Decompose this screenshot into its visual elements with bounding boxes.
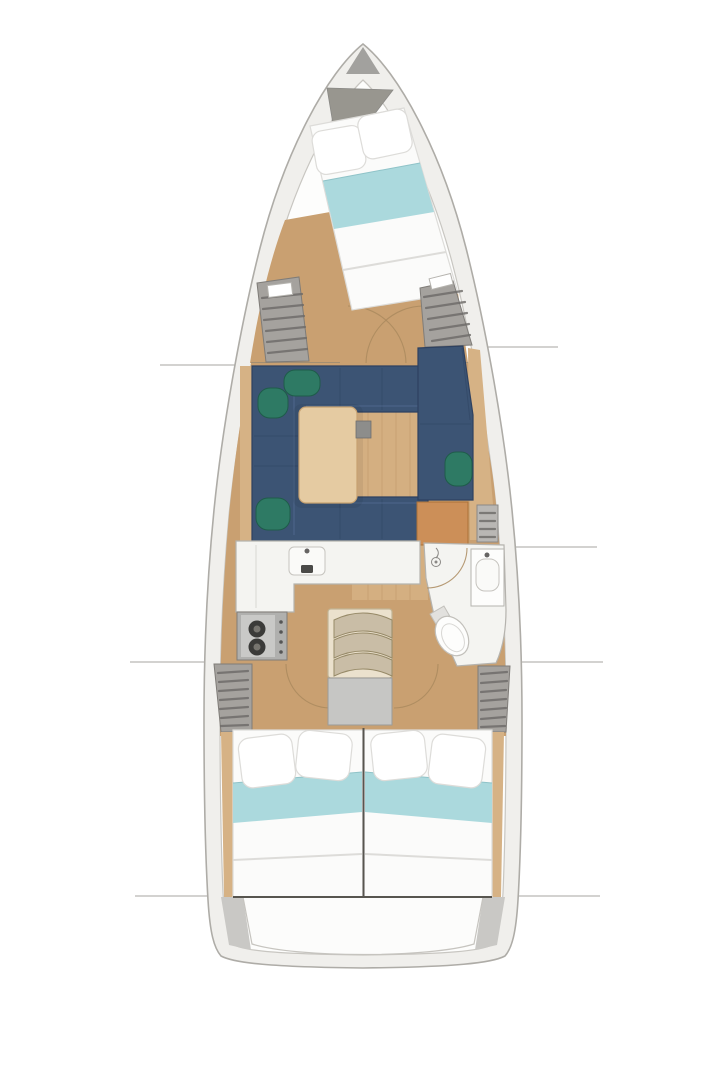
sink-drain: [301, 565, 313, 573]
engine-box: [328, 678, 392, 725]
yacht-floor-plan: [0, 0, 721, 1080]
pillow: [356, 107, 414, 160]
aft-cabin-starboard-bed: [364, 729, 492, 897]
burner-center: [254, 626, 261, 633]
pillow: [295, 729, 354, 781]
pillow: [427, 733, 487, 789]
floor-plan-page: [0, 0, 721, 1080]
forward-cabin: [250, 107, 472, 364]
starboard-settee: [418, 346, 473, 500]
shower-dot: [435, 561, 438, 564]
aft-locker-starboard: [478, 666, 510, 732]
table-top: [299, 407, 357, 503]
green-cushion: [256, 498, 290, 530]
burner-center: [254, 644, 261, 651]
transom-seat: [243, 897, 483, 955]
green-cushion: [258, 388, 288, 418]
head-sink: [476, 559, 499, 591]
green-cushion: [445, 452, 472, 486]
aft-cabin-port-bed: [233, 729, 363, 897]
stove-knob: [279, 640, 283, 644]
stove-knob: [279, 620, 283, 624]
locker-shelf: [267, 283, 292, 298]
nav-cabinet: [417, 502, 468, 545]
aft-locker-port: [214, 664, 252, 732]
pillow: [237, 733, 297, 789]
faucet: [305, 549, 310, 554]
head-faucet: [485, 553, 490, 558]
stern: [221, 897, 505, 955]
port-side-trim: [240, 366, 252, 541]
pillow: [370, 729, 429, 781]
stove-knob: [279, 630, 283, 634]
stove-knob: [279, 650, 283, 654]
aft-cabins: [221, 728, 504, 897]
stove: [237, 612, 287, 660]
green-cushion: [284, 370, 320, 396]
salon-table: [293, 404, 371, 508]
side-mini-locker: [477, 505, 498, 542]
table-bracket: [356, 421, 371, 438]
head-vanity: [471, 549, 504, 606]
